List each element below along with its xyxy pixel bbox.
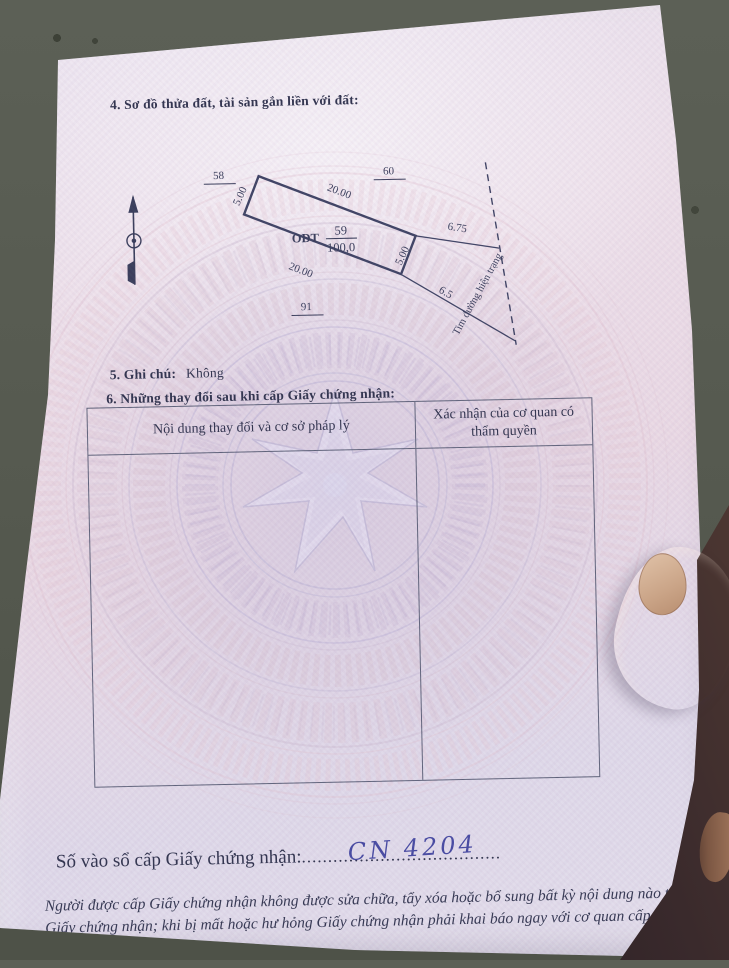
parcel-diagram: 58 60 91 5.00 20.00 20.00 5.00 — [45, 144, 550, 394]
parcel-label: ODT 59 100,0 — [292, 223, 358, 255]
edge-right-dim: 5.00 — [393, 244, 412, 267]
registry-line: Số vào sổ cấp Giấy chứng nhận:..........… — [56, 842, 502, 873]
land-use-code: ODT — [292, 231, 320, 246]
adjacent-parcel-right: 60 — [383, 165, 395, 177]
table-cell-content-empty — [88, 449, 423, 787]
road-centerline-label: Tim đường hiện trạng — [451, 251, 505, 337]
table-cell-confirmation-empty — [416, 445, 599, 780]
road-centerline — [485, 162, 516, 346]
edge-bottom-dim: 20.00 — [287, 261, 315, 281]
footer-warning-note: Người được cấp Giấy chứng nhận không đượ… — [45, 882, 712, 941]
section5-value: Không — [186, 365, 224, 381]
dist-to-road-top: 6.75 — [447, 221, 468, 236]
table-body-row — [88, 445, 599, 786]
adjacent-parcel-bottom: 91 — [301, 301, 312, 313]
registry-label: Số vào sổ cấp Giấy chứng nhận: — [56, 846, 302, 872]
page-content: 4. Sơ đồ thửa đất, tài sản gắn liền với … — [0, 0, 729, 968]
certificate-page: 4. Sơ đồ thửa đất, tài sản gắn liền với … — [0, 0, 729, 960]
adjacent-parcel-left: 58 — [213, 170, 225, 182]
table-header-content: Nội dung thay đổi và cơ sở pháp lý — [87, 402, 416, 455]
section5-label: 5. Ghi chú: — [110, 366, 177, 382]
tie-line-top — [416, 234, 499, 250]
north-arrow-icon — [126, 195, 142, 285]
edge-top-dim: 20.00 — [325, 182, 353, 202]
table-header-confirmation: Xác nhận của cơ quan có thẩm quyền — [415, 398, 592, 448]
parcel-number: 59 — [334, 223, 347, 237]
section5-note: 5. Ghi chú:Không — [110, 365, 224, 383]
changes-table: Nội dung thay đổi và cơ sở pháp lý Xác n… — [86, 397, 600, 788]
dist-to-road-bottom: 6.5 — [437, 284, 455, 301]
section4-title: 4. Sơ đồ thửa đất, tài sản gắn liền với … — [110, 92, 359, 113]
photo-scene: 4. Sơ đồ thửa đất, tài sản gắn liền với … — [0, 0, 729, 960]
table-header-confirmation-text: Xác nhận của cơ quan có thẩm quyền — [423, 403, 584, 443]
parcel-area: 100,0 — [327, 240, 355, 255]
